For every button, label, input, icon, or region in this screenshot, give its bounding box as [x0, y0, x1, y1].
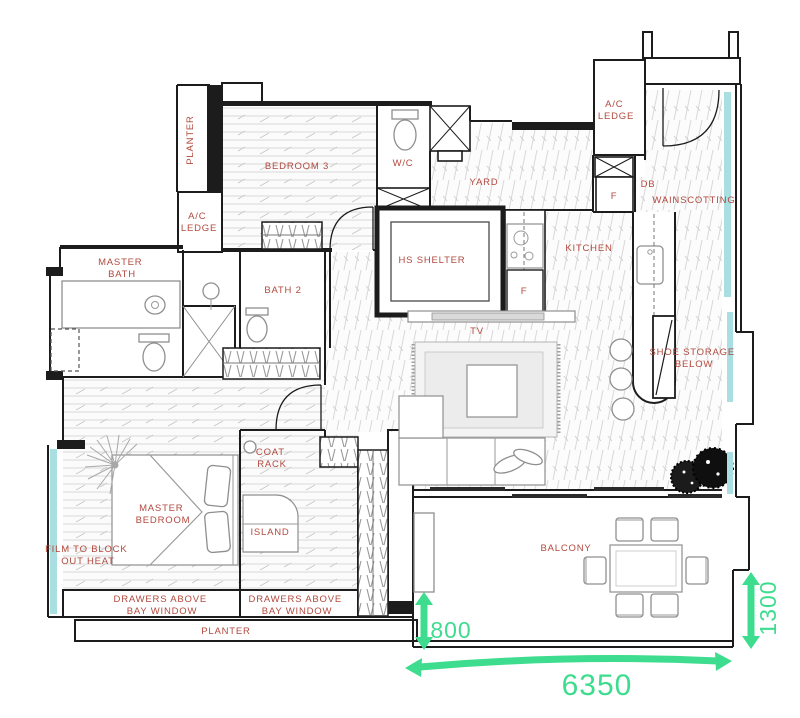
label-coat-rack: COAT RACK [256, 447, 288, 470]
bathtub [51, 329, 79, 371]
stub-right [729, 32, 738, 58]
label-bath2: BATH 2 [264, 285, 301, 296]
dimension-6350: 6350 [405, 652, 732, 702]
label-wc: W/C [393, 158, 414, 169]
wc-toilet-tank [392, 110, 418, 119]
dimension-800: 800 [415, 592, 472, 650]
balcony-furniture [414, 513, 708, 617]
label-drawers-right: DRAWERS ABOVE BAY WINDOW [249, 594, 346, 617]
pedestal-basin [203, 283, 219, 299]
ac-ledge-left-box [178, 192, 222, 252]
window-right-low [727, 452, 733, 494]
planter-top-right-wall [207, 85, 222, 192]
label-fridge: F [521, 286, 528, 297]
coffee-table [467, 365, 517, 417]
label-master-bath: MASTER BATH [98, 257, 146, 280]
island-wardrobe-top [320, 437, 358, 467]
label-tv: TV [470, 326, 484, 337]
bath2-toilet-bowl [247, 316, 267, 342]
dim-1300-text: 1300 [755, 580, 781, 635]
bar-stool-1 [610, 339, 632, 361]
bar-stool-2 [610, 368, 632, 390]
floor-plan: PLANTER A/C LEDGE BEDROOM 3 W/C YARD A/C… [0, 0, 800, 718]
label-drawers-left: DRAWERS ABOVE BAY WINDOW [114, 594, 211, 617]
label-wainscotting: WAINSCOTTING [652, 195, 735, 206]
masterbath-toilet-tank [139, 334, 169, 342]
label-planter-top: PLANTER [185, 115, 196, 164]
label-hs-shelter: HS SHELTER [399, 255, 466, 266]
entry-top-band [645, 58, 740, 84]
label-bedroom3: BEDROOM 3 [265, 161, 329, 172]
label-master-bedroom: MASTER BEDROOM [136, 503, 191, 526]
label-balcony: BALCONY [540, 543, 591, 554]
stove [507, 224, 543, 268]
sink [637, 246, 663, 284]
pillow-1 [204, 465, 231, 507]
sofa-chaise [399, 396, 443, 438]
label-db: DB [641, 179, 656, 190]
balcony-bench [414, 513, 434, 592]
label-yard: YARD [470, 177, 499, 188]
tv-panel [432, 313, 544, 320]
dim-800-text: 800 [430, 617, 471, 643]
stub-left [643, 32, 652, 58]
label-ac-ledge-right: A/C LEDGE [598, 99, 634, 122]
bath2-toilet-tank [246, 308, 268, 315]
window-left-bay [50, 449, 57, 614]
masterbath-toilet-bowl [143, 343, 165, 371]
floor-plan-drawing: PLANTER A/C LEDGE BEDROOM 3 W/C YARD A/C… [0, 0, 800, 718]
corridor-floor [183, 380, 325, 432]
label-island: ISLAND [250, 527, 289, 538]
bedroom3-top-box [222, 83, 262, 103]
label-fuse: F [611, 191, 618, 202]
vanity-sink [145, 296, 165, 314]
pillow-2 [204, 511, 230, 553]
label-kitchen: KITCHEN [565, 243, 612, 254]
label-planter-bottom: PLANTER [201, 626, 250, 637]
label-ac-ledge-left: A/C LEDGE [181, 211, 217, 234]
dimensions: 800 6350 1300 [405, 572, 781, 702]
bar-stool-3 [612, 398, 634, 420]
dining-table [610, 545, 682, 592]
dimension-1300: 1300 [742, 572, 781, 649]
dim-6350-text: 6350 [562, 669, 633, 702]
wc-toilet-bowl [394, 120, 416, 150]
coat-rack-symbol [244, 441, 256, 453]
shaft-ledge [438, 151, 462, 161]
